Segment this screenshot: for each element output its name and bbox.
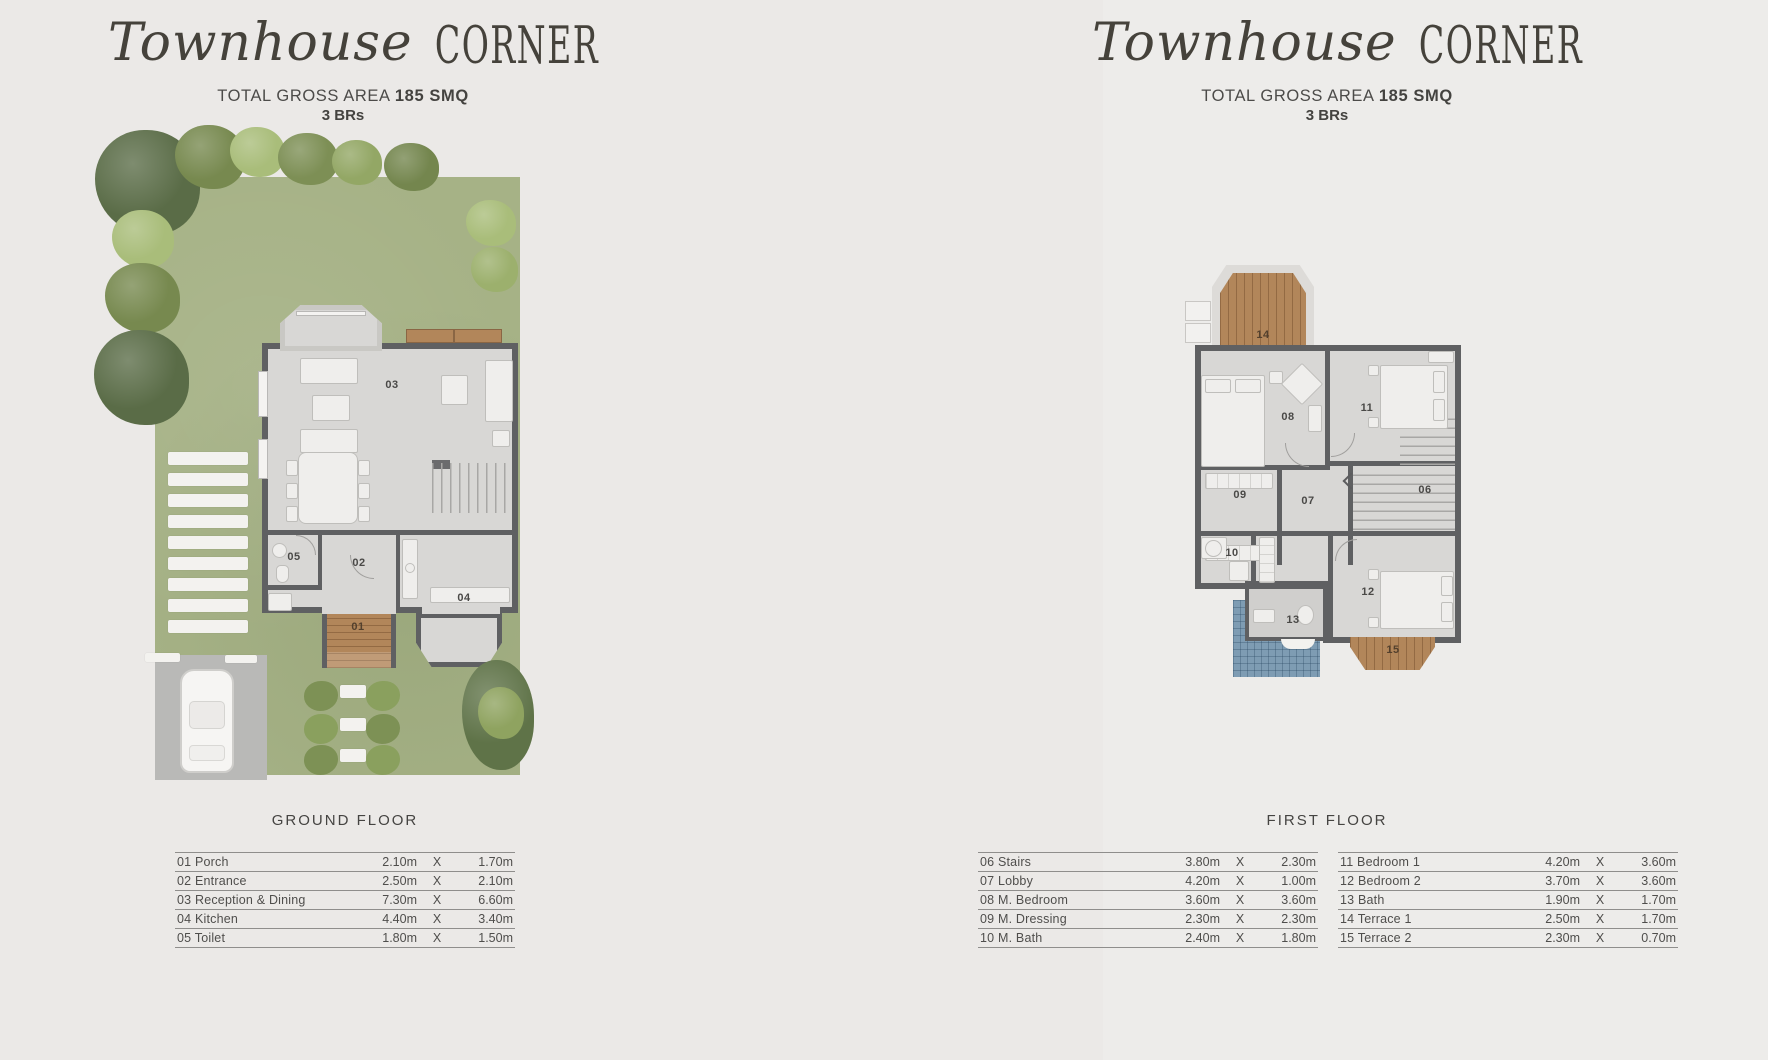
- door-opening: [322, 607, 396, 614]
- room-depth: 6.60m: [457, 893, 513, 907]
- pillow: [1433, 371, 1445, 393]
- wall: [1277, 465, 1282, 565]
- curb-mark: [145, 653, 180, 662]
- room-depth: 1.70m: [1620, 912, 1676, 926]
- closet: [1259, 537, 1275, 583]
- stepping-stone: [168, 536, 248, 549]
- room-width: 2.30m: [1164, 912, 1220, 926]
- roof-outline-box: [1185, 301, 1211, 321]
- title-script: Townhouse: [1092, 13, 1397, 73]
- table-row: 01 Porch 2.10m X 1.70m: [175, 853, 515, 872]
- wall: [396, 533, 400, 613]
- room-width: 4.20m: [1524, 855, 1580, 869]
- dimension-separator: X: [417, 912, 457, 926]
- curb-mark: [225, 655, 257, 663]
- nightstand: [1368, 569, 1379, 580]
- dimension-separator: X: [417, 874, 457, 888]
- window-opening: [422, 607, 500, 614]
- wall: [1195, 583, 1329, 589]
- dimension-separator: X: [1220, 931, 1260, 945]
- chair: [286, 506, 298, 522]
- title-caps: CORNER: [1419, 13, 1583, 78]
- room-name: 07 Lobby: [980, 874, 1164, 888]
- room-depth: 1.50m: [457, 931, 513, 945]
- stepping-stone: [168, 494, 248, 507]
- wardrobe: [1205, 473, 1273, 489]
- stepping-stone: [340, 685, 366, 698]
- palm-tree: [478, 687, 524, 739]
- chair: [358, 460, 370, 476]
- parked-car: [180, 669, 234, 773]
- wall: [1328, 533, 1333, 643]
- garden-bench: [406, 329, 502, 343]
- laundry-sink: [268, 593, 292, 611]
- toilet: [276, 565, 289, 583]
- room-name: 10 M. Bath: [980, 931, 1164, 945]
- dimension-separator: X: [1220, 855, 1260, 869]
- table-row: 03 Reception & Dining 7.30m X 6.60m: [175, 891, 515, 910]
- room-depth: 1.70m: [457, 855, 513, 869]
- room-width: 4.40m: [361, 912, 417, 926]
- dresser: [1308, 405, 1322, 432]
- chair: [286, 483, 298, 499]
- stepping-stone: [168, 599, 248, 612]
- sofa: [300, 429, 358, 453]
- porch-steps: [327, 652, 391, 668]
- chair: [358, 506, 370, 522]
- room-depth: 2.10m: [457, 874, 513, 888]
- gross-area-label: TOTAL GROSS AREA: [1201, 87, 1374, 105]
- kitchen-bay-window: [416, 613, 502, 667]
- room-depth: 0.70m: [1620, 931, 1676, 945]
- first-floor-dimension-table-right: 11 Bedroom 1 4.20m X 3.60m 12 Bedroom 2 …: [1338, 852, 1678, 948]
- bay-window-glass: [296, 311, 366, 316]
- room-name: 05 Toilet: [177, 931, 361, 945]
- pine-tree: [94, 330, 189, 425]
- room-width: 2.50m: [361, 874, 417, 888]
- room-label-toilet: 05: [280, 551, 308, 563]
- pillow: [1441, 602, 1453, 622]
- room-width: 3.70m: [1524, 874, 1580, 888]
- roof-outline-box: [1185, 323, 1211, 343]
- tree: [112, 210, 174, 268]
- wall: [262, 530, 518, 535]
- dimension-separator: X: [1220, 912, 1260, 926]
- sink: [1253, 609, 1275, 623]
- tree: [384, 143, 439, 191]
- stepping-stone: [168, 473, 248, 486]
- room-name: 12 Bedroom 2: [1340, 874, 1524, 888]
- room-name: 06 Stairs: [980, 855, 1164, 869]
- table-row: 10 M. Bath 2.40m X 1.80m: [978, 929, 1318, 948]
- gross-area-value: 185 SMQ: [1379, 87, 1453, 105]
- ground-floor-dimension-table: 01 Porch 2.10m X 1.70m 02 Entrance 2.50m…: [175, 852, 515, 948]
- dimension-separator: X: [1580, 874, 1620, 888]
- pillow: [1433, 399, 1445, 421]
- room-depth: 2.30m: [1260, 912, 1316, 926]
- dimension-separator: X: [1580, 855, 1620, 869]
- room-width: 3.80m: [1164, 855, 1220, 869]
- room-width: 1.80m: [361, 931, 417, 945]
- page-title: Townhouse CORNER: [108, 14, 578, 85]
- dimension-separator: X: [417, 855, 457, 869]
- chair: [286, 460, 298, 476]
- gross-area-value: 185 SMQ: [395, 87, 469, 105]
- room-depth: 3.60m: [1260, 893, 1316, 907]
- table-row: 02 Entrance 2.50m X 2.10m: [175, 872, 515, 891]
- room-width: 7.30m: [361, 893, 417, 907]
- stairs-lower-flight: [1353, 472, 1455, 530]
- nightstand: [1368, 417, 1379, 428]
- room-width: 2.10m: [361, 855, 417, 869]
- room-depth: 1.00m: [1260, 874, 1316, 888]
- room-label-m-dressing: 09: [1226, 489, 1254, 501]
- stepping-stone: [340, 749, 366, 762]
- room-depth: 3.40m: [457, 912, 513, 926]
- room-depth: 1.70m: [1620, 893, 1676, 907]
- title-script: Townhouse: [108, 13, 413, 73]
- room-width: 2.50m: [1524, 912, 1580, 926]
- room-name: 08 M. Bedroom: [980, 893, 1164, 907]
- room-label-bedroom-1: 11: [1353, 402, 1381, 414]
- dimension-separator: X: [1580, 912, 1620, 926]
- room-name: 15 Terrace 2: [1340, 931, 1524, 945]
- pillow: [1441, 576, 1453, 596]
- room-label-bedroom-2: 12: [1354, 586, 1382, 598]
- car-rear-window: [189, 745, 225, 761]
- table-row: 09 M. Dressing 2.30m X 2.30m: [978, 910, 1318, 929]
- table-row: 07 Lobby 4.20m X 1.00m: [978, 872, 1318, 891]
- wall: [262, 585, 322, 590]
- shower: [1229, 561, 1249, 581]
- ground-header: Townhouse CORNER TOTAL GROSS AREA 185 SM…: [108, 14, 578, 124]
- armchair: [441, 375, 468, 405]
- dimension-separator: X: [1220, 893, 1260, 907]
- stepping-stone: [168, 515, 248, 528]
- tree: [230, 127, 285, 177]
- side-table: [492, 430, 510, 447]
- room-label-bath: 13: [1279, 614, 1307, 626]
- first-floor-plan: 14 08 11 09 07 06 10 12 13 15: [1185, 265, 1475, 685]
- chair: [358, 483, 370, 499]
- table-row: 14 Terrace 1 2.50m X 1.70m: [1338, 910, 1678, 929]
- first-floor-caption: FIRST FLOOR: [1157, 812, 1497, 829]
- tree: [332, 140, 382, 185]
- room-name: 13 Bath: [1340, 893, 1524, 907]
- bush: [466, 200, 516, 246]
- stepping-stone: [168, 620, 248, 633]
- room-label-lobby: 07: [1294, 495, 1322, 507]
- dimension-separator: X: [1220, 874, 1260, 888]
- table-row: 12 Bedroom 2 3.70m X 3.60m: [1338, 872, 1678, 891]
- dimension-separator: X: [417, 893, 457, 907]
- sofa: [300, 358, 358, 384]
- stepping-stone: [168, 452, 248, 465]
- room-depth: 1.80m: [1260, 931, 1316, 945]
- room-label-m-bath: 10: [1218, 547, 1246, 559]
- window-seat: [1428, 351, 1454, 363]
- dimension-separator: X: [1580, 893, 1620, 907]
- stairs: [432, 463, 512, 513]
- room-label-terrace-1: 14: [1249, 329, 1277, 341]
- window: [258, 439, 268, 479]
- table-row: 06 Stairs 3.80m X 2.30m: [978, 853, 1318, 872]
- room-name: 02 Entrance: [177, 874, 361, 888]
- room-name: 01 Porch: [177, 855, 361, 869]
- room-name: 04 Kitchen: [177, 912, 361, 926]
- wall: [318, 533, 322, 590]
- nightstand: [1368, 617, 1379, 628]
- room-name: 11 Bedroom 1: [1340, 855, 1524, 869]
- bedrooms-count: 3 BRs: [1092, 107, 1562, 124]
- table-row: 11 Bedroom 1 4.20m X 3.60m: [1338, 853, 1678, 872]
- room-width: 1.90m: [1524, 893, 1580, 907]
- tree: [105, 263, 180, 333]
- window: [258, 371, 268, 417]
- pillow: [1205, 379, 1231, 393]
- table-row: 13 Bath 1.90m X 1.70m: [1338, 891, 1678, 910]
- stepping-stone: [168, 578, 248, 591]
- table-row: 15 Terrace 2 2.30m X 0.70m: [1338, 929, 1678, 948]
- dimension-separator: X: [417, 931, 457, 945]
- title-caps: CORNER: [435, 13, 599, 78]
- pillow: [1235, 379, 1261, 393]
- gross-area-line: TOTAL GROSS AREA 185 SMQ: [108, 87, 578, 106]
- nightstand: [1368, 365, 1379, 376]
- coffee-table: [312, 395, 350, 421]
- room-depth: 3.60m: [1620, 874, 1676, 888]
- room-name: 14 Terrace 1: [1340, 912, 1524, 926]
- room-depth: 3.60m: [1620, 855, 1676, 869]
- sofa: [485, 360, 513, 422]
- stepping-stone: [168, 557, 248, 570]
- table-row: 08 M. Bedroom 3.60m X 3.60m: [978, 891, 1318, 910]
- gross-area-label: TOTAL GROSS AREA: [217, 87, 390, 105]
- room-label-m-bedroom: 08: [1274, 411, 1302, 423]
- kitchen-sink: [405, 563, 415, 573]
- table-row: 05 Toilet 1.80m X 1.50m: [175, 929, 515, 948]
- wall: [1325, 345, 1330, 469]
- stepping-stone: [340, 718, 366, 731]
- table-row: 04 Kitchen 4.40m X 3.40m: [175, 910, 515, 929]
- bath-steps: [1281, 639, 1315, 649]
- room-width: 3.60m: [1164, 893, 1220, 907]
- first-floor-dimension-table-left: 06 Stairs 3.80m X 2.30m 07 Lobby 4.20m X…: [978, 852, 1318, 948]
- room-label-terrace-2: 15: [1379, 644, 1407, 656]
- ground-floor-plan: 03 05 02 04 01: [100, 115, 520, 780]
- room-label-reception: 03: [378, 379, 406, 391]
- dining-table: [298, 452, 358, 524]
- room-name: 03 Reception & Dining: [177, 893, 361, 907]
- room-label-entrance: 02: [345, 557, 373, 569]
- room-name: 09 M. Dressing: [980, 912, 1164, 926]
- gross-area-line: TOTAL GROSS AREA 185 SMQ: [1092, 87, 1562, 106]
- first-header: Townhouse CORNER TOTAL GROSS AREA 185 SM…: [1092, 14, 1562, 124]
- room-width: 4.20m: [1164, 874, 1220, 888]
- ground-floor-caption: GROUND FLOOR: [175, 812, 515, 829]
- tree: [278, 133, 338, 185]
- dimension-separator: X: [1580, 931, 1620, 945]
- page-title: Townhouse CORNER: [1092, 14, 1562, 85]
- room-width: 2.30m: [1524, 931, 1580, 945]
- bush: [471, 247, 518, 292]
- car-windshield: [189, 701, 225, 729]
- room-width: 2.40m: [1164, 931, 1220, 945]
- room-label-kitchen: 04: [450, 592, 478, 604]
- room-label-stairs: 06: [1411, 484, 1439, 496]
- room-depth: 2.30m: [1260, 855, 1316, 869]
- room-label-porch: 01: [344, 621, 372, 633]
